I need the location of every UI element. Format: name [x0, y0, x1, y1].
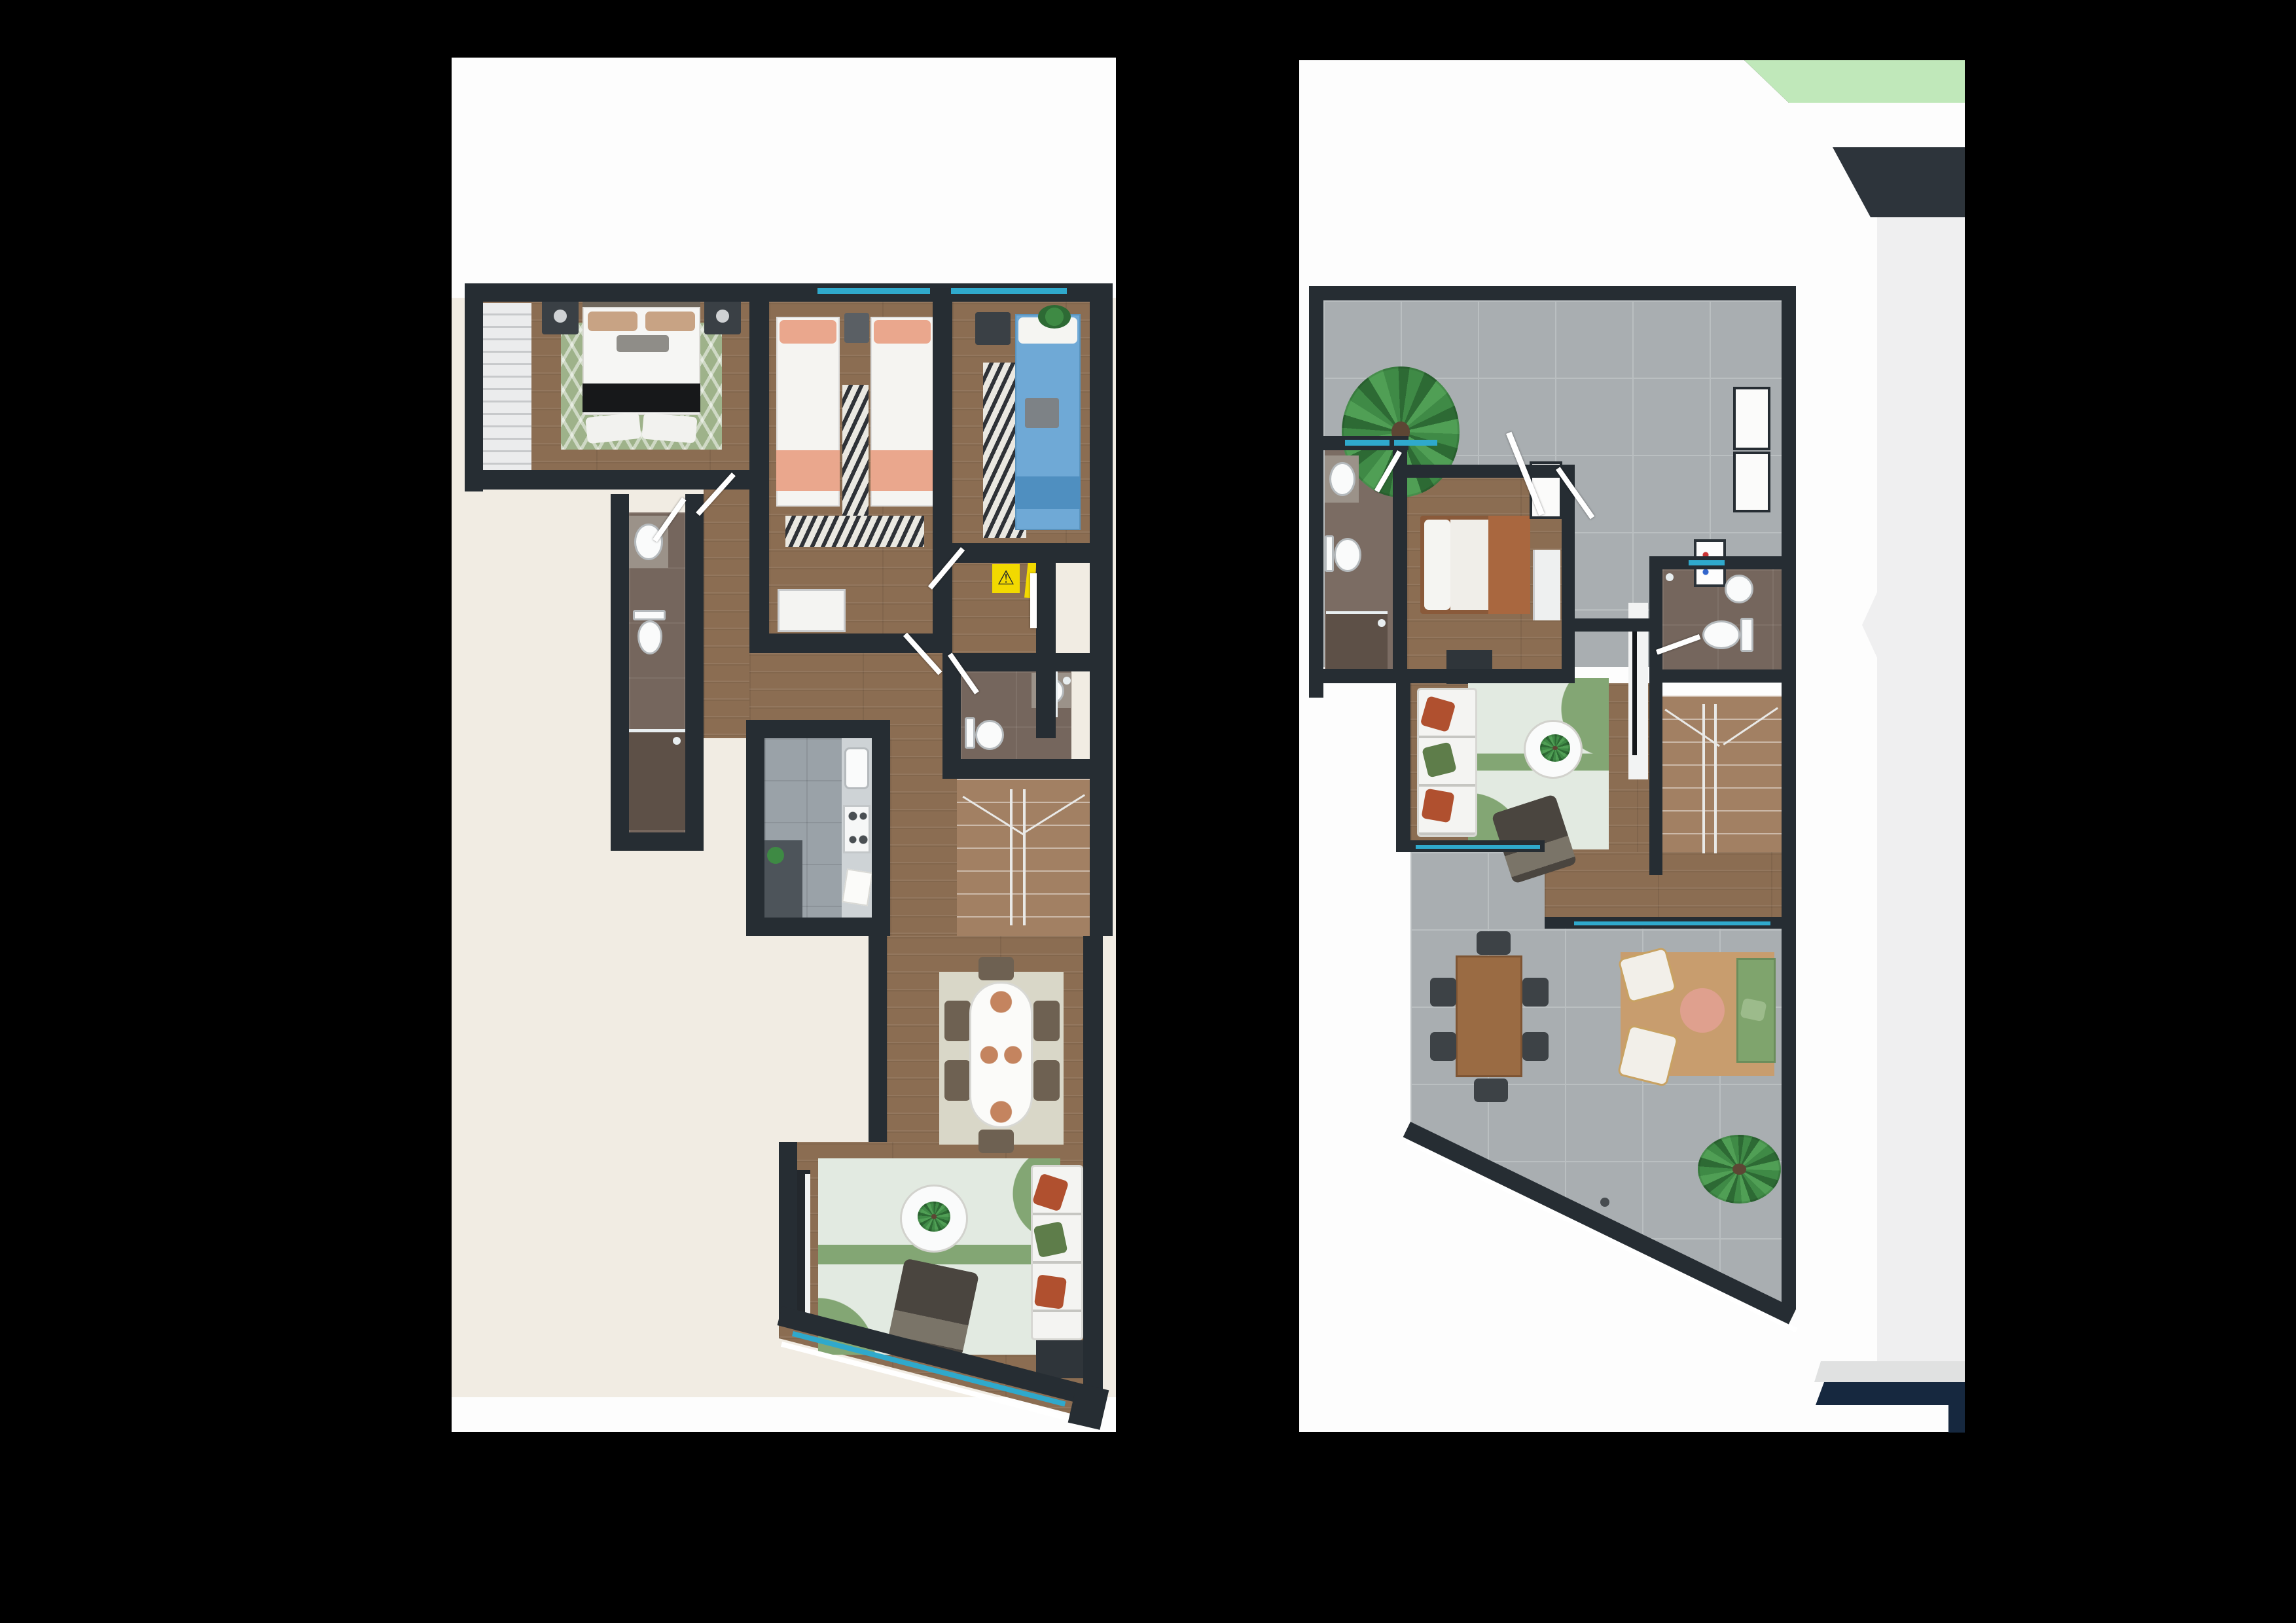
outdoor-chair — [1430, 1032, 1456, 1061]
toilet-tank — [965, 717, 975, 749]
shower-head — [1666, 573, 1674, 581]
potted-plant — [1698, 1135, 1781, 1204]
entrance-door — [1030, 573, 1037, 628]
floor-plan-level-2 — [1299, 58, 1993, 1438]
bed-foot-band-peach — [776, 450, 840, 491]
nightstand — [975, 312, 1011, 345]
coffee-table-plant — [1540, 734, 1570, 762]
closet-panel — [1533, 550, 1560, 620]
plant — [767, 847, 784, 864]
dining-chair — [1033, 1060, 1060, 1101]
outdoor-chair — [1430, 978, 1456, 1007]
wall — [1309, 286, 1323, 698]
nightstand — [844, 313, 869, 343]
window — [817, 288, 930, 294]
sink — [634, 524, 663, 560]
wall — [1090, 283, 1113, 563]
outdoor-chair — [1522, 1032, 1549, 1061]
bed-gray-cushion — [617, 335, 669, 352]
bed-pillow — [645, 312, 695, 331]
toilet-bowl — [1334, 538, 1361, 572]
outdoor-chair — [1522, 978, 1549, 1007]
master-shower-floor — [629, 732, 685, 830]
wall — [1090, 563, 1113, 936]
storage-box — [1733, 387, 1770, 450]
shower-glass — [629, 729, 685, 732]
window — [1394, 440, 1437, 446]
wall — [1782, 286, 1796, 1309]
wall — [1562, 465, 1575, 683]
window — [951, 288, 1067, 294]
wall — [1573, 618, 1649, 632]
hallway-floor — [704, 486, 749, 738]
wall — [1649, 669, 1796, 683]
shower-glass — [1326, 611, 1388, 614]
sink — [1329, 462, 1355, 496]
door-handle-dot — [1600, 1198, 1609, 1207]
wall — [1407, 465, 1575, 478]
bed-foot-band-peach — [870, 450, 934, 491]
bed-black-throw — [583, 383, 700, 412]
wall — [746, 720, 890, 738]
toilet-tank — [1740, 618, 1753, 652]
wardrobe-niche — [778, 589, 846, 632]
wall — [611, 832, 704, 851]
wall — [1649, 683, 1662, 875]
toilet-tank — [633, 610, 666, 620]
wardrobe-closet — [483, 303, 531, 470]
warning-sign: ⚠ — [992, 564, 1020, 593]
dining-chair — [978, 957, 1014, 980]
shower-head — [673, 737, 681, 745]
wall — [1396, 669, 1410, 852]
bed-pillow-peach — [780, 320, 836, 344]
wall — [942, 759, 1113, 779]
floor-plan-sheet: ⚠ — [0, 0, 2296, 1623]
shower-head — [1378, 619, 1386, 627]
outdoor-chair — [1474, 1079, 1508, 1102]
cutting-sheet — [842, 868, 873, 906]
coffee-table-plant — [918, 1202, 950, 1232]
dining-table — [969, 982, 1033, 1128]
bed-gray-cushion — [1025, 398, 1059, 428]
toilet-tank — [1325, 535, 1334, 572]
wall — [746, 720, 764, 936]
bed-sheet — [1450, 520, 1488, 610]
passage-floor — [1545, 852, 1782, 917]
wall — [1393, 436, 1407, 683]
zebra-rug — [785, 516, 924, 547]
wall — [779, 1142, 797, 1325]
bed-pillow — [1424, 520, 1450, 610]
bed-pillow-peach — [874, 320, 931, 344]
wall — [1309, 669, 1575, 683]
kitchen-sink — [844, 747, 869, 789]
wall — [1083, 936, 1103, 1394]
wall — [749, 283, 769, 653]
nightstand-lamp — [554, 310, 567, 323]
wall — [1036, 563, 1056, 738]
dining-chair — [1033, 1001, 1060, 1041]
window — [1574, 921, 1770, 925]
bed-foot-pillow — [585, 412, 641, 444]
wall — [1309, 286, 1796, 300]
round-side-table — [1680, 988, 1725, 1033]
wall — [769, 633, 952, 653]
wall — [685, 494, 704, 851]
nightstand-lamp — [716, 310, 729, 323]
wall — [869, 936, 887, 1142]
wall — [611, 494, 629, 851]
outdoor-dining-table — [1456, 955, 1522, 1077]
shower-head — [1063, 677, 1071, 685]
bed-foot-pillow — [641, 413, 697, 444]
dining-chair — [944, 1060, 971, 1101]
side-table — [1036, 1340, 1083, 1378]
tv-panel — [805, 1174, 810, 1318]
warning-glyph: ⚠ — [997, 569, 1015, 588]
stair-rail — [1010, 789, 1026, 925]
bed-foot-band — [1015, 476, 1081, 509]
window — [1689, 560, 1725, 565]
wall — [746, 918, 890, 936]
storage-box — [1733, 452, 1770, 512]
wall — [942, 653, 1090, 671]
tv-screen — [1632, 627, 1637, 755]
window — [1345, 440, 1390, 446]
toilet-bowl — [975, 720, 1004, 750]
outdoor-chair — [1477, 931, 1511, 955]
stove — [843, 805, 870, 853]
dining-chair — [978, 1130, 1014, 1153]
dining-chair — [944, 1001, 971, 1041]
wall — [952, 543, 1113, 563]
floor-plan-level-1: ⚠ — [452, 58, 1116, 1432]
bed-blanket — [1488, 516, 1530, 614]
sink — [1725, 575, 1753, 603]
wall — [465, 283, 483, 491]
wall — [1649, 556, 1662, 684]
stair-rail — [1702, 704, 1717, 853]
wall — [872, 720, 890, 936]
plant — [1038, 305, 1071, 329]
bed-pillow — [588, 312, 637, 331]
sofa-pillow-red — [1034, 1274, 1067, 1310]
window — [1416, 845, 1540, 849]
sofa-pillow-red — [1421, 789, 1454, 823]
toilet-bowl — [1702, 620, 1740, 649]
